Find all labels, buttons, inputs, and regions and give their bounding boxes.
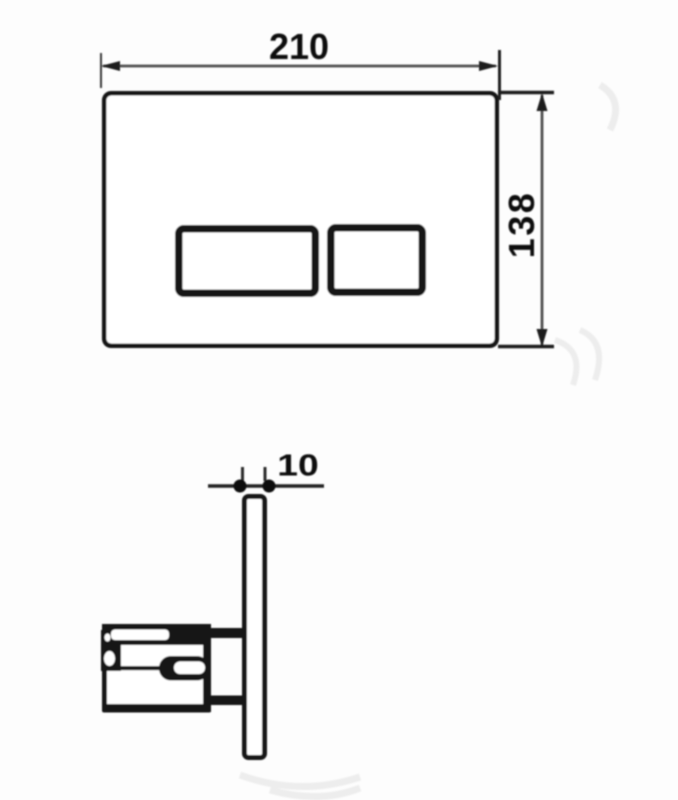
svg-text:10: 10 <box>277 448 318 482</box>
svg-text:210: 210 <box>269 26 329 67</box>
svg-text:138: 138 <box>501 191 542 259</box>
